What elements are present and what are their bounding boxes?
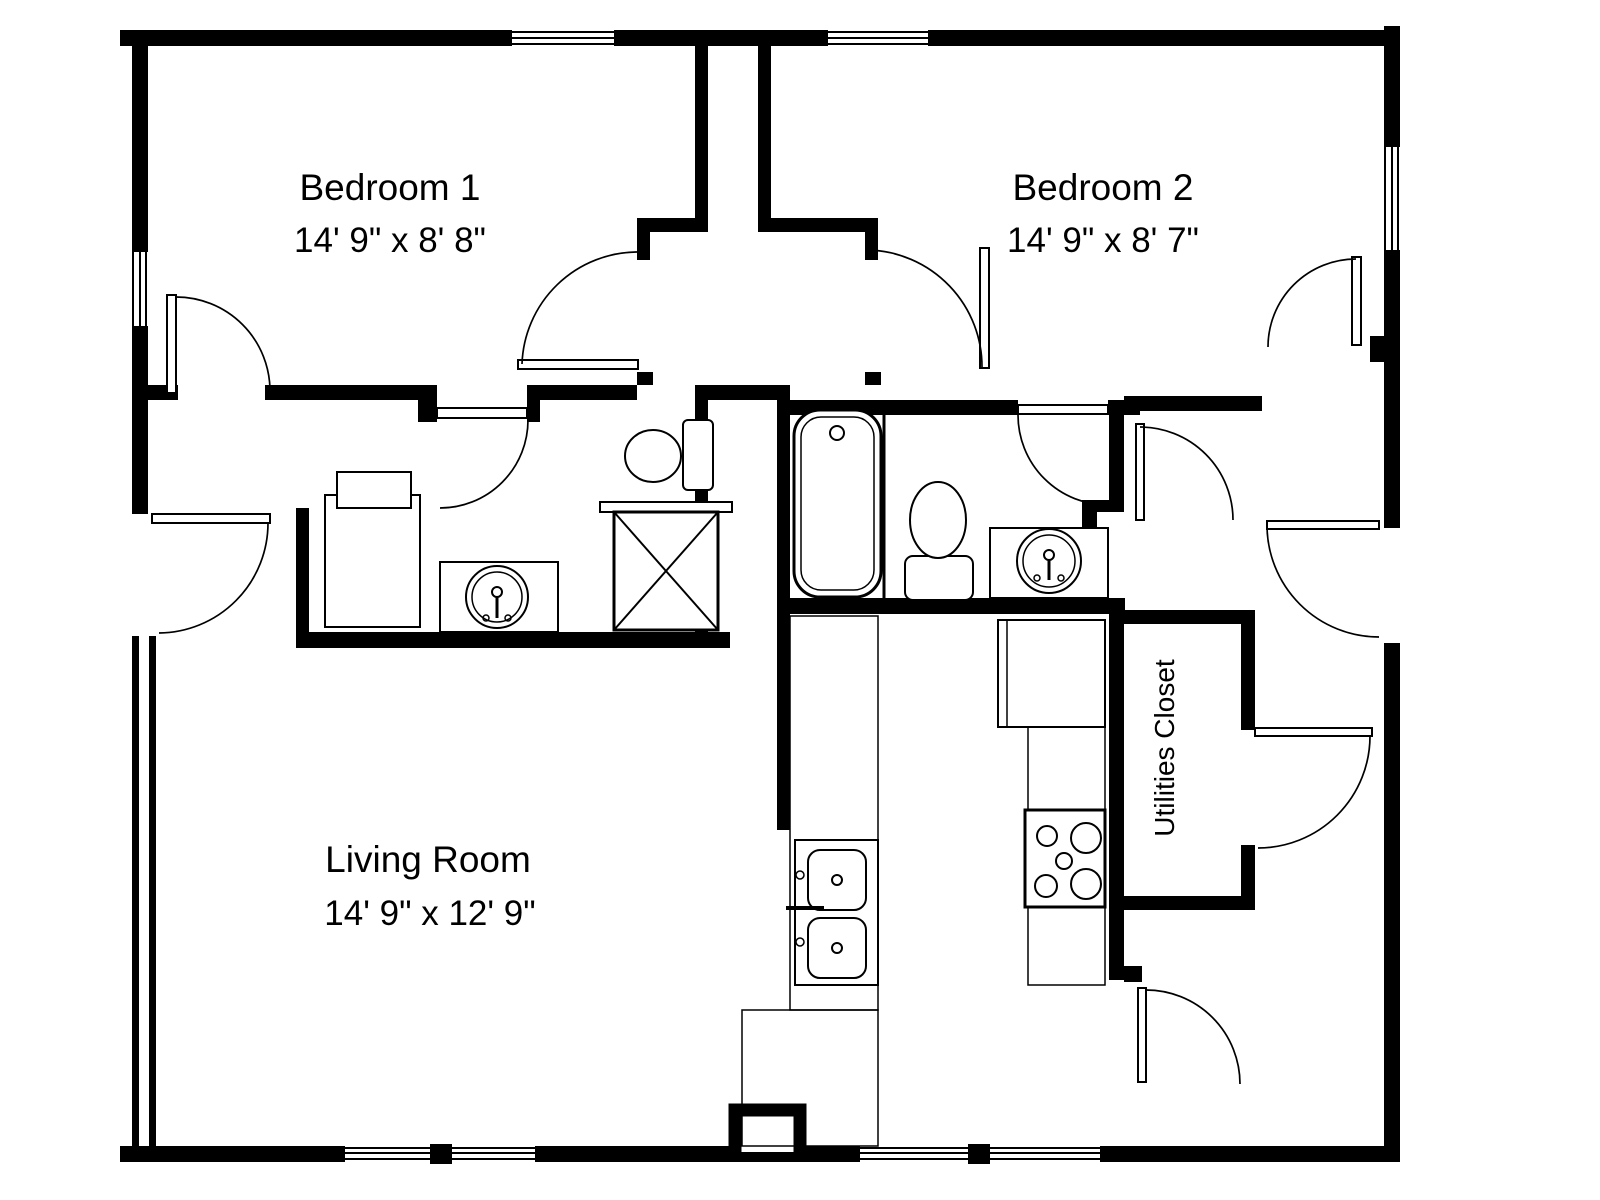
living-room-west-door: [152, 514, 270, 633]
wall-top-center: [614, 30, 828, 46]
wall-right-lower: [1384, 643, 1400, 1162]
bedroom2-se-door: [1268, 257, 1361, 347]
floor-plan: Bedroom 1 14' 9" x 8' 8" Bedroom 2 14' 9…: [0, 0, 1600, 1200]
washer-icon: [325, 495, 420, 627]
wall-right-mid: [1384, 250, 1400, 528]
hallway-wall-left: [695, 46, 708, 222]
window-top-1: [512, 32, 614, 44]
bathroom2-door: [1018, 405, 1108, 505]
wall-right-upper: [1384, 26, 1400, 147]
hall-west-wall: [1109, 415, 1124, 512]
bathroom1-west-wall: [296, 508, 309, 648]
door-swing-arc: [159, 523, 268, 633]
bathroom1-door: [437, 408, 528, 508]
door-swing-arc: [522, 252, 638, 364]
toilet-icon: [625, 420, 713, 490]
bedroom1-label: Bedroom 1: [300, 167, 481, 208]
door-jamb: [637, 372, 653, 385]
door-swing-arc: [1140, 427, 1233, 520]
wall-left-lower-inner: [149, 636, 156, 1148]
chase-cap-wall: [695, 385, 790, 400]
bedroom2-south-wall: [1124, 396, 1262, 411]
hallway-wall-right: [758, 46, 771, 222]
door-swing-arc: [869, 250, 982, 368]
door-leaf: [518, 360, 638, 369]
door-leaf: [1018, 405, 1108, 414]
door-swing-arc: [1258, 736, 1370, 848]
door-leaf: [1136, 424, 1144, 520]
living-room-label: Living Room: [325, 839, 531, 880]
bedroom2-dimensions: 14' 9" x 8' 7": [1007, 221, 1199, 260]
window-top-2: [828, 32, 928, 44]
window-pier: [968, 1144, 990, 1164]
bedroom1-hall-door: [518, 252, 638, 369]
door-jamb: [527, 385, 540, 422]
bedroom1-west-door: [167, 295, 270, 393]
door-swing-arc: [1018, 415, 1108, 505]
door-swing-arc: [176, 297, 270, 391]
closet-west-wall: [1109, 600, 1124, 980]
hallway-jog-right: [758, 218, 878, 232]
fridge-icon: [998, 620, 1105, 727]
door-jamb: [865, 372, 881, 385]
door-swing-arc: [1267, 525, 1379, 637]
window-pier: [430, 1144, 452, 1164]
door-leaf: [1267, 521, 1379, 529]
window-bottom-2: [452, 1148, 535, 1159]
sink-icon: [440, 562, 558, 632]
door-leaf: [167, 295, 176, 393]
hallway-jog-left: [637, 218, 708, 232]
utilities-closet-door: [1255, 728, 1372, 848]
door-leaf: [1352, 257, 1361, 345]
stove-icon: [1025, 810, 1105, 907]
closet-south-wall: [1109, 896, 1255, 910]
door-jamb: [637, 232, 650, 260]
washer-lid-icon: [337, 472, 411, 508]
door-swing-arc: [1146, 990, 1240, 1084]
wall-left-mid: [132, 326, 148, 514]
wall-bottom-right: [1100, 1146, 1400, 1162]
wall-left-lower-outer: [132, 636, 139, 1148]
bathtub-icon: [794, 410, 881, 597]
bathroom1-south-wall: [296, 632, 730, 648]
door-jamb: [418, 385, 437, 422]
bath-hall-door: [1136, 424, 1233, 520]
door-jamb: [865, 232, 878, 260]
door-swing-arc: [440, 420, 528, 508]
bedroom1-south-wall: [540, 385, 637, 400]
window-bottom-4: [990, 1148, 1100, 1159]
wall-left-upper: [132, 30, 148, 252]
wall-bottom-center: [535, 1146, 860, 1162]
shower-icon: [614, 512, 718, 630]
window-bottom-1: [345, 1148, 430, 1159]
window-bottom-3: [860, 1148, 968, 1159]
bedroom1-south-wall: [265, 385, 418, 400]
closet-north-wall: [1109, 610, 1255, 624]
toilet-icon: [905, 482, 973, 600]
bathroom-2-fixtures: [794, 410, 1108, 600]
doors: [152, 248, 1379, 1084]
door-leaf: [1138, 988, 1146, 1082]
bedroom1-dimensions: 14' 9" x 8' 8": [294, 221, 486, 260]
door-leaf: [437, 408, 527, 418]
utilities-closet-label: Utilities Closet: [1149, 659, 1180, 837]
bedroom2-hall-door: [869, 248, 989, 368]
living-room-dimensions: 14' 9" x 12' 9": [324, 894, 535, 933]
floor-plan-svg: Bedroom 1 14' 9" x 8' 8" Bedroom 2 14' 9…: [0, 0, 1600, 1200]
kitchen-fixtures: [742, 616, 1105, 1146]
kitchen-sink-icon: [786, 840, 878, 985]
door-swing-arc: [1268, 259, 1356, 347]
window-right: [1385, 147, 1398, 250]
window-left: [133, 252, 146, 326]
chase-wall-right: [777, 400, 790, 830]
closet-east-wall-upper: [1241, 610, 1255, 730]
door-jamb: [1124, 966, 1142, 982]
living-room-east-door: [1267, 521, 1379, 637]
sink-icon: [990, 528, 1108, 598]
entry-door: [1138, 988, 1240, 1084]
door-leaf: [1255, 728, 1372, 736]
door-leaf: [152, 514, 270, 523]
wall-top-right: [928, 30, 1400, 46]
door-jamb-block: [1370, 336, 1384, 362]
wall-bottom-left: [120, 1146, 345, 1162]
wall-top-left: [120, 30, 512, 46]
bedroom2-label: Bedroom 2: [1013, 167, 1194, 208]
